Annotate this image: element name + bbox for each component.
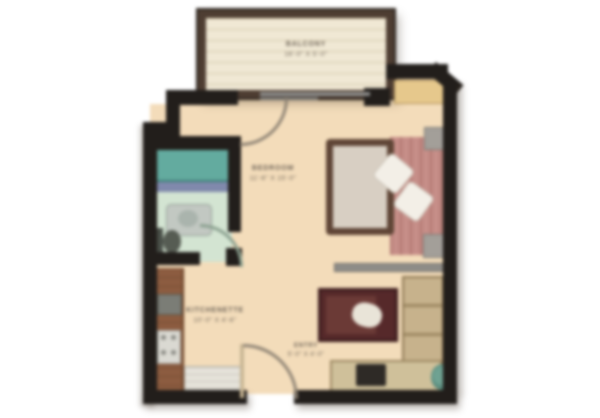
entry-dims: 5'-0" X 4'-0" (274, 351, 338, 360)
tv-console (330, 360, 442, 392)
kitchenette-dims: 10'-0" X 4'-6" (172, 316, 258, 325)
stove-burner (161, 350, 166, 355)
wall (166, 90, 180, 126)
stove-burner (171, 350, 176, 355)
bedroom-label: BEDROOM 11'-6" X 15'-0" (228, 164, 318, 184)
balcony-dims: 16'-0" X 5'-0" (258, 50, 354, 59)
sliding-glass-door (260, 92, 370, 96)
bathroom-wall-right (228, 136, 241, 232)
sink-basin (178, 210, 198, 227)
shelf-ledge (394, 80, 444, 104)
stove-burner (171, 335, 176, 340)
wall-bottom (143, 390, 247, 404)
duvet (326, 139, 394, 235)
wall-bottom (294, 390, 457, 404)
floor-plan-image: BALCONY 16'-0" X 5'-0" BEDROOM 11'-6" X … (0, 0, 600, 418)
wall (364, 88, 390, 106)
kitchenette-name: KITCHENETTE (172, 306, 258, 316)
bathroom-wall-top (143, 136, 240, 150)
entry-label: ENTRY 5'-0" X 4'-0" (274, 342, 338, 359)
balcony-name: BALCONY (258, 40, 354, 50)
bedroom-name: BEDROOM (228, 164, 318, 174)
floor-plan: BALCONY 16'-0" X 5'-0" BEDROOM 11'-6" X … (0, 0, 600, 418)
bathtub (152, 148, 232, 182)
bedroom-dims: 11'-6" X 15'-0" (228, 174, 318, 183)
bathroom-wall-bottom (143, 252, 200, 265)
kitchenette-label: KITCHENETTE 10'-0" X 4'-6" (172, 306, 258, 326)
entry-name: ENTRY (274, 342, 338, 351)
toilet-bowl (163, 230, 181, 253)
room-divider (334, 263, 444, 272)
stove-burner (161, 335, 166, 340)
balcony-label: BALCONY 16'-0" X 5'-0" (258, 40, 354, 60)
wall-right (443, 82, 457, 394)
tv (356, 364, 386, 386)
tile-strip (152, 182, 232, 192)
